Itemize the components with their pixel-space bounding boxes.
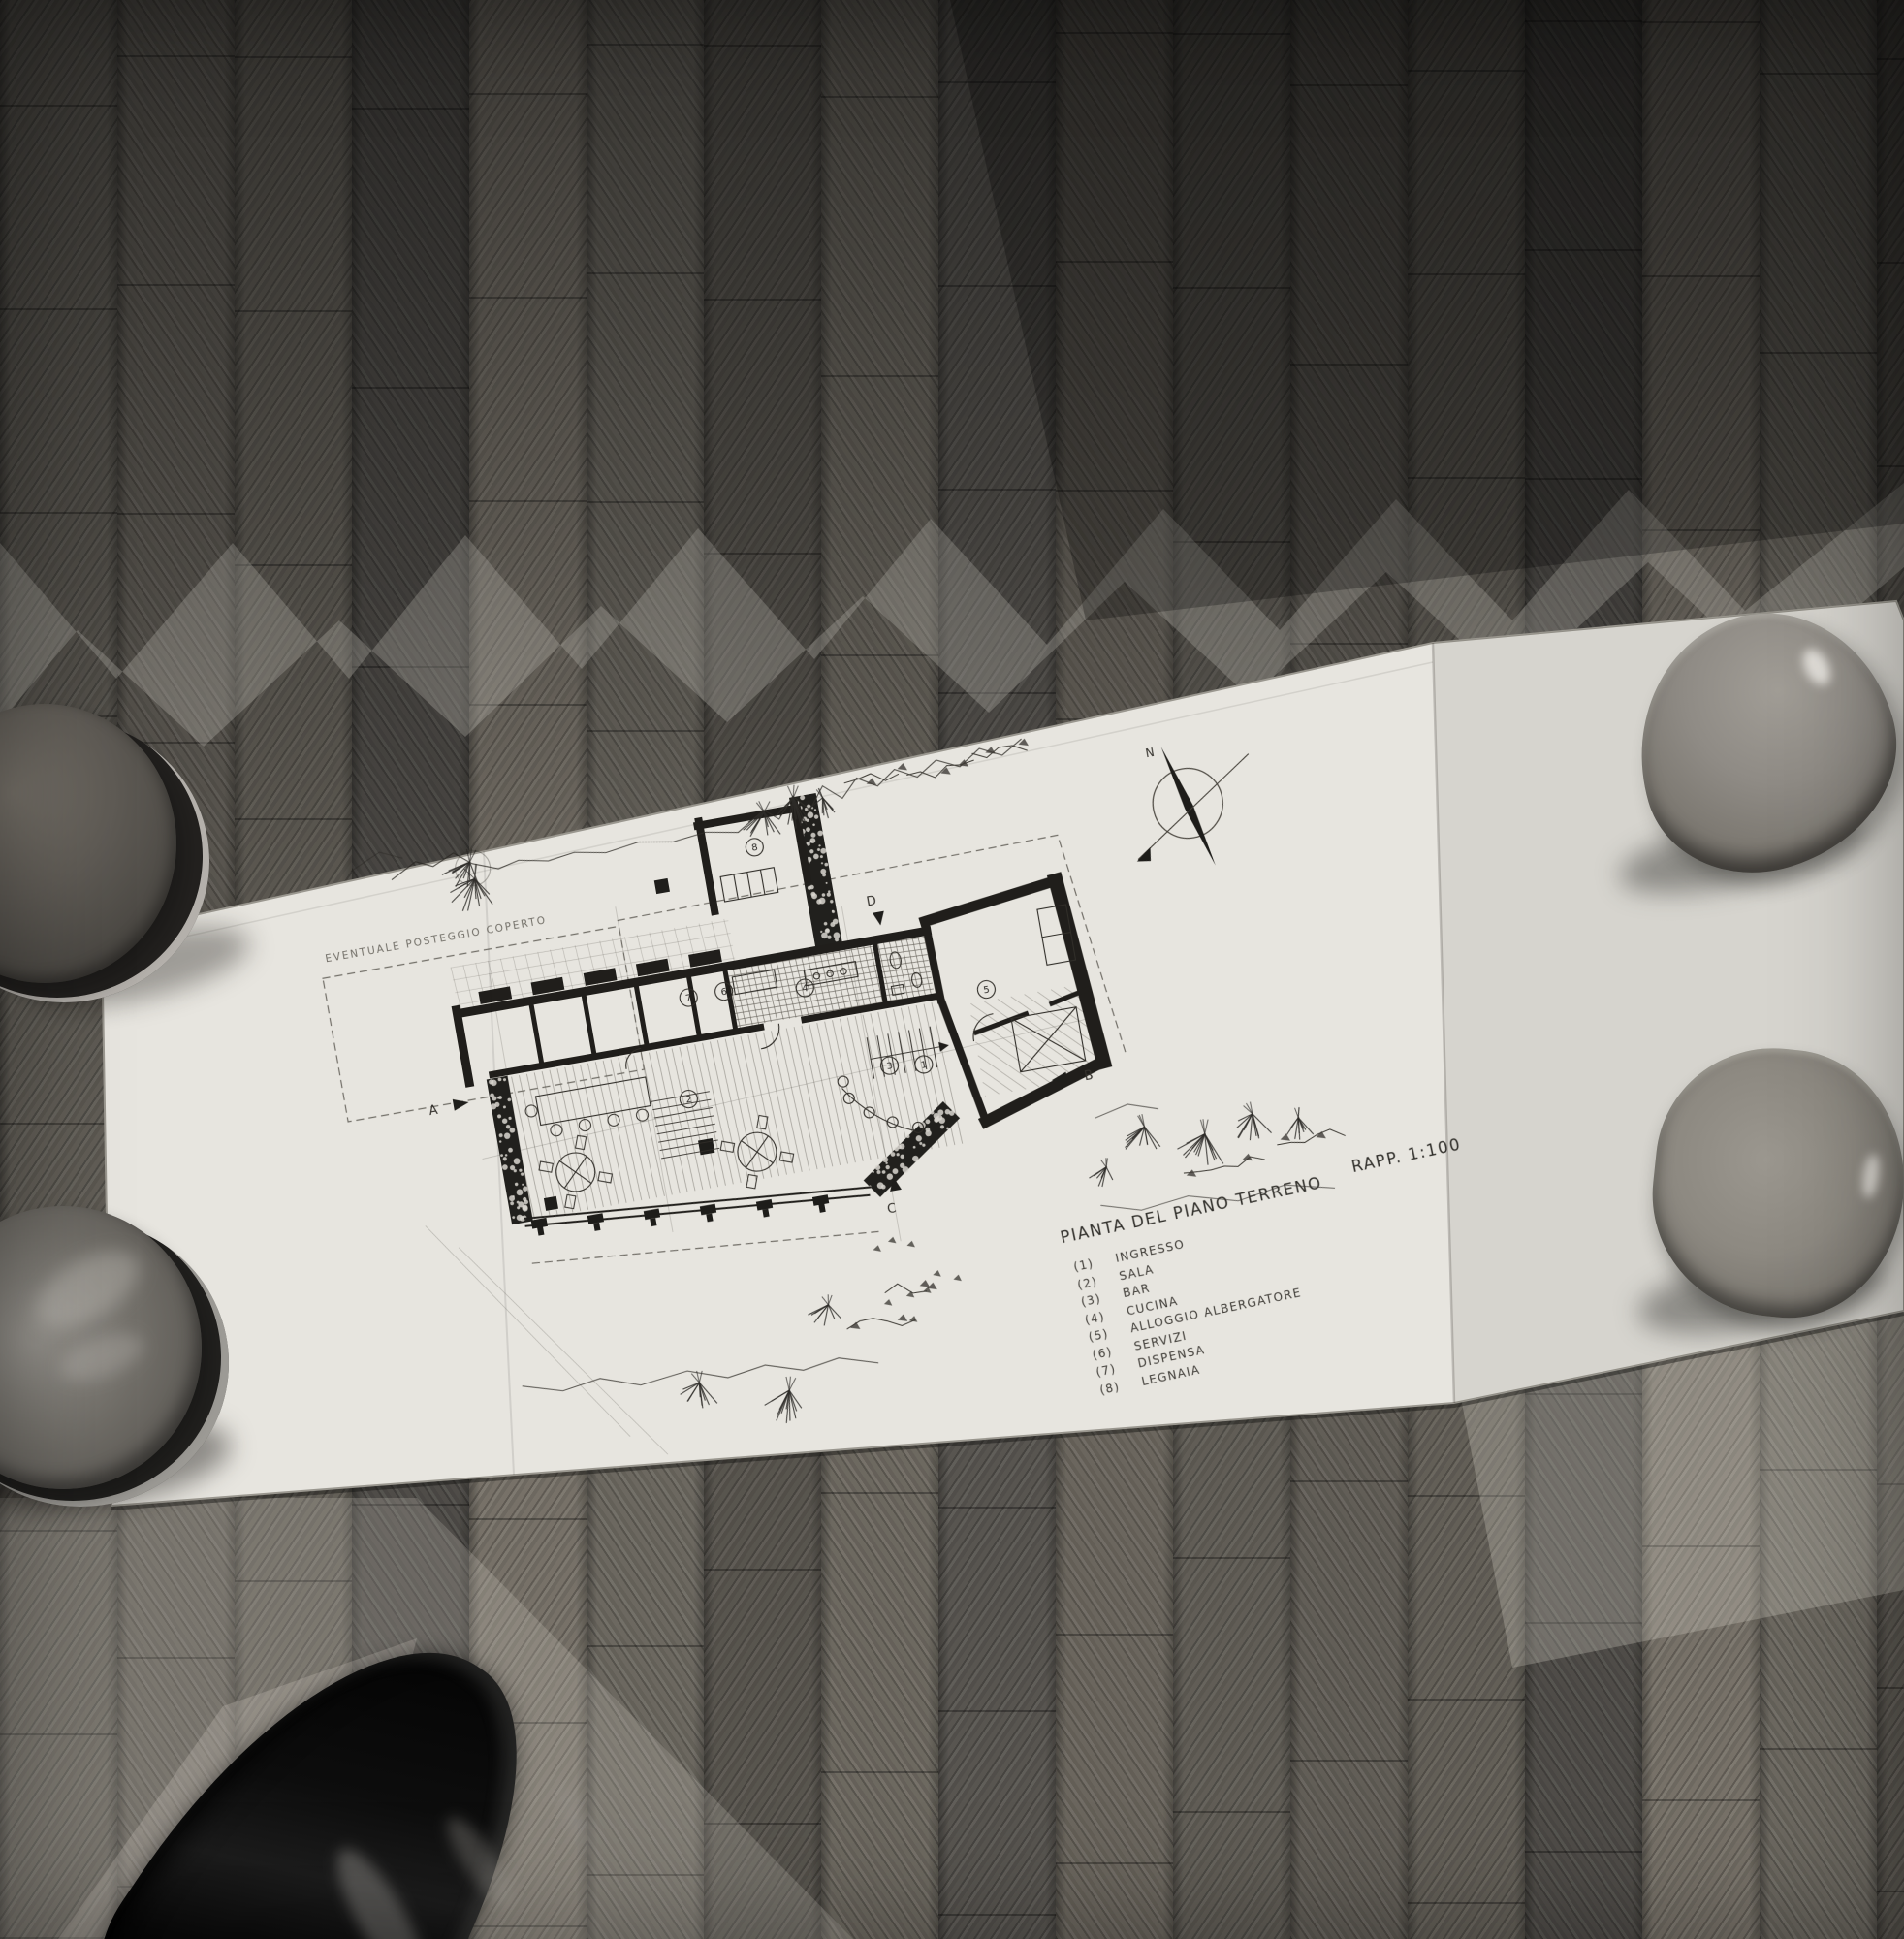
shoe-highlight: [322, 1838, 440, 1939]
leather-shoe: [219, 1625, 646, 1939]
drawing-sheet: [102, 601, 1904, 1509]
shoe-highlight: [437, 1809, 523, 1915]
shoe-highlight: [549, 1780, 599, 1854]
column: [544, 1196, 558, 1211]
site-marker-square: [654, 878, 670, 894]
photo-canvas: EVENTUALE POSTEGGIO COPERTO: [0, 0, 1904, 1939]
